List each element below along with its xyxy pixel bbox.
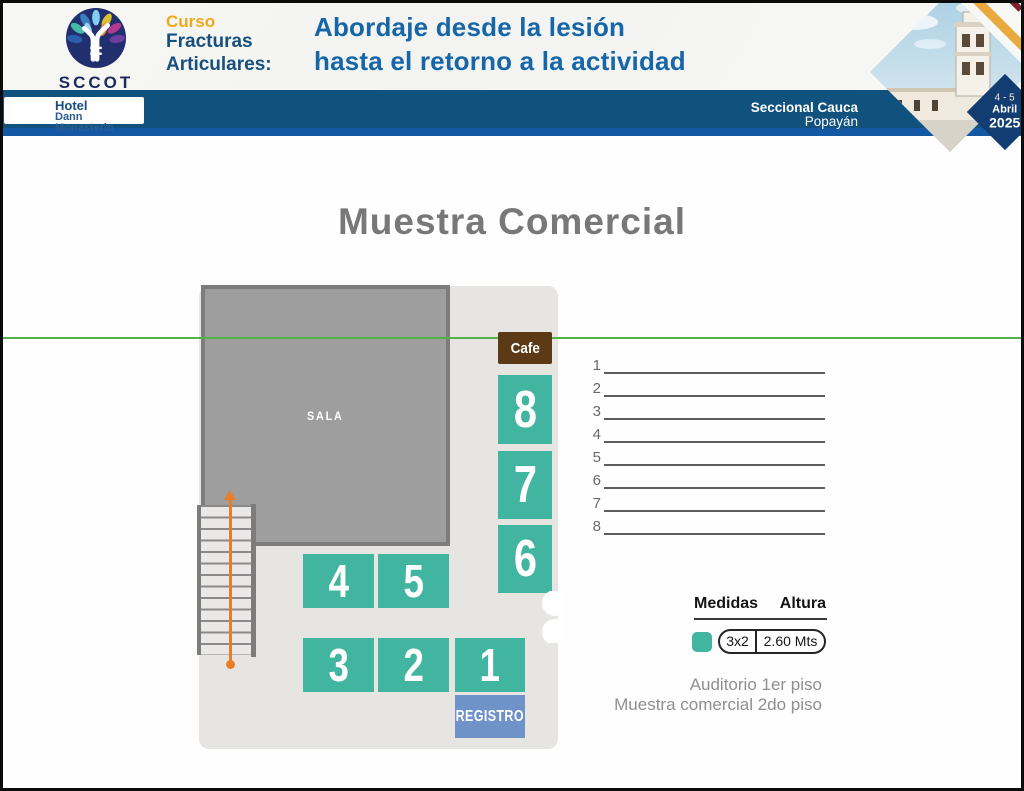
floor-note-line2: Muestra comercial 2do piso — [614, 695, 822, 715]
booth-6: 6 — [498, 525, 552, 593]
registro-desk: REGISTRO — [455, 695, 525, 738]
logo-acronym: SCCOT — [53, 74, 139, 91]
event-date-year: 2025 — [989, 116, 1020, 130]
course-block: Curso Fracturas Articulares: — [166, 12, 272, 76]
course-name-line2: Articulares: — [166, 54, 272, 77]
seccional-label: Seccional Cauca — [751, 101, 858, 115]
booth-size-value: 3x2 — [720, 631, 757, 652]
blank-line — [604, 426, 825, 443]
blank-line — [604, 403, 825, 420]
legend-col-medidas: Medidas — [694, 595, 758, 613]
legend-measures-pill: 3x2 2.60 Mts — [718, 629, 826, 654]
page-title: Muestra Comercial — [3, 201, 1021, 243]
booth-4: 4 — [303, 554, 374, 608]
venue-box: Hotel Dann Monasterio — [4, 97, 144, 124]
exhibitor-line-5: 5 — [591, 446, 825, 466]
exhibitor-line-3: 3 — [591, 400, 825, 420]
floor-note-line1: Auditorio 1er piso — [614, 675, 822, 695]
panel-edge-notch — [537, 591, 563, 643]
blank-line — [604, 518, 825, 535]
blank-line — [604, 495, 825, 512]
legend-col-altura: Altura — [780, 595, 826, 613]
blank-line — [604, 472, 825, 489]
booth-8: 8 — [498, 375, 552, 444]
legend-header: Medidas Altura — [694, 595, 826, 613]
stairs-direction-line — [229, 498, 232, 664]
stairs-steps — [201, 505, 251, 655]
blank-line — [604, 449, 825, 466]
booth-2: 2 — [378, 638, 449, 692]
header-bar-accent — [3, 128, 1021, 136]
sala-label: SALA — [307, 409, 344, 423]
city-label: Popayán — [751, 115, 858, 129]
booth-3: 3 — [303, 638, 374, 692]
header-bar — [3, 90, 1021, 128]
exhibitor-line-6: 6 — [591, 469, 825, 489]
blank-line — [604, 357, 825, 374]
exhibitor-line-7: 7 — [591, 492, 825, 512]
stairs-rail-right — [251, 504, 256, 657]
stairs-start-dot — [226, 660, 235, 669]
cafe-area: Cafe — [498, 332, 552, 364]
course-kicker: Curso — [166, 12, 272, 31]
registro-label: REGISTRO — [456, 708, 524, 726]
event-title: Abordaje desde la lesión hasta el retorn… — [314, 10, 686, 78]
location-block: Seccional Cauca Popayán — [751, 101, 858, 129]
cafe-label: Cafe — [510, 340, 539, 357]
blank-line — [604, 380, 825, 397]
legend-row: 3x2 2.60 Mts — [692, 629, 826, 654]
event-title-line1: Abordaje desde la lesión — [314, 10, 686, 44]
venue-name: Dann Monasterio — [55, 112, 144, 134]
stairs-rail-left — [197, 505, 201, 655]
booth-height-value: 2.60 Mts — [757, 631, 824, 652]
booth-1: 1 — [455, 638, 525, 692]
exhibitor-line-4: 4 — [591, 423, 825, 443]
sccot-logo: SCCOT SOCIEDAD COLOMBIANA DE CIRUGÍA ORT… — [53, 7, 139, 100]
course-name-line1: Fracturas — [166, 31, 272, 54]
event-title-line2: hasta el retorno a la actividad — [314, 44, 686, 78]
floor-notes: Auditorio 1er piso Muestra comercial 2do… — [614, 675, 822, 714]
booth-7: 7 — [498, 451, 552, 519]
legend-divider — [694, 618, 827, 620]
sccot-tree-icon — [65, 7, 127, 69]
exhibitor-line-1: 1 — [591, 354, 825, 374]
event-date-days: 4 - 5 — [989, 94, 1020, 104]
event-floorplan-page: SCCOT SOCIEDAD COLOMBIANA DE CIRUGÍA ORT… — [0, 0, 1024, 791]
booth-5: 5 — [378, 554, 449, 608]
stairs — [197, 504, 256, 657]
stairs-arrow-up-icon — [224, 490, 236, 500]
exhibitor-line-2: 2 — [591, 377, 825, 397]
exhibitor-line-8: 8 — [591, 515, 825, 535]
booth-color-swatch — [692, 632, 712, 652]
